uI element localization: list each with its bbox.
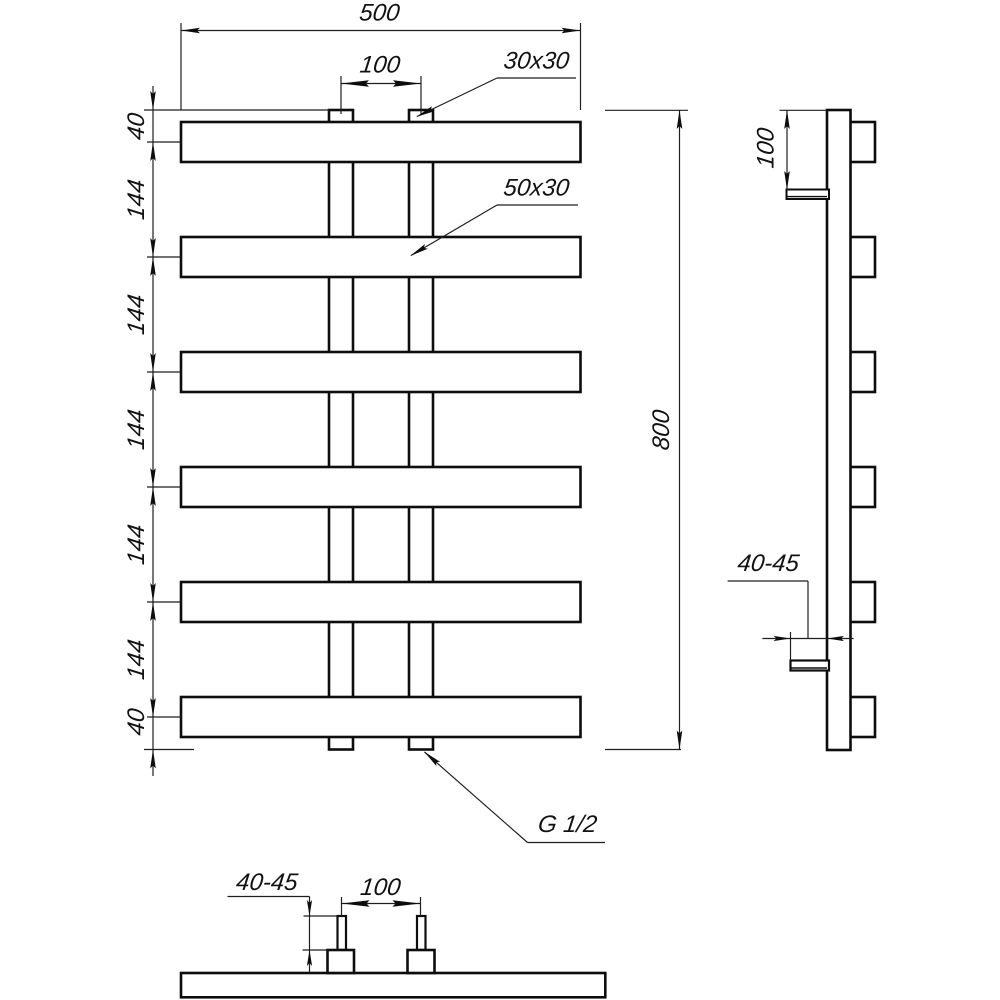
svg-text:40-45: 40-45 [736, 550, 801, 577]
svg-text:144: 144 [123, 293, 150, 336]
svg-text:40-45: 40-45 [235, 869, 300, 896]
svg-text:144: 144 [123, 638, 150, 681]
svg-text:144: 144 [123, 178, 150, 221]
svg-text:100: 100 [359, 874, 403, 901]
svg-text:144: 144 [123, 408, 150, 451]
svg-text:G 1/2: G 1/2 [537, 811, 600, 838]
svg-text:40: 40 [123, 706, 150, 737]
svg-text:50x30: 50x30 [502, 175, 571, 202]
svg-text:144: 144 [123, 523, 150, 566]
svg-text:40: 40 [123, 111, 150, 142]
svg-text:100: 100 [753, 126, 780, 170]
svg-text:500: 500 [358, 0, 402, 26]
svg-text:100: 100 [358, 52, 402, 79]
svg-text:30x30: 30x30 [502, 48, 571, 75]
svg-text:800: 800 [648, 408, 675, 452]
